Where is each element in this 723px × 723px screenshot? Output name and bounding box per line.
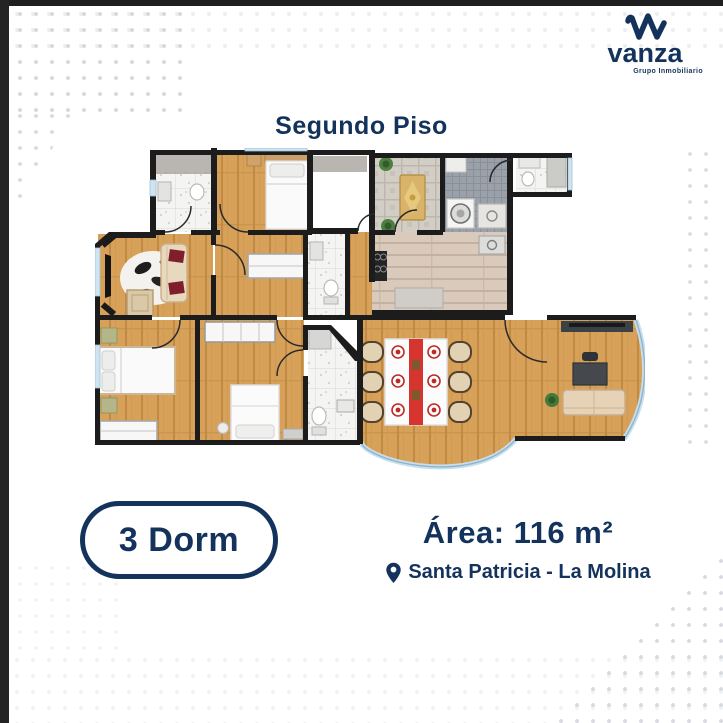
page-title: Segundo Piso <box>0 112 723 141</box>
dot-pattern-right <box>682 146 718 456</box>
closet-shelf <box>313 156 367 172</box>
bedrooms-badge-label: 3 Dorm <box>119 521 239 560</box>
property-info: Área: 116 m² Santa Patricia - La Molina <box>368 515 668 584</box>
brand-name: vanza <box>585 40 705 67</box>
hallway-closet <box>248 254 304 278</box>
frame-edge-left <box>0 0 9 723</box>
brand-logo: vanza Grupo Inmobiliario <box>585 12 705 75</box>
dot-pattern-top-left <box>12 6 182 114</box>
location-row: Santa Patricia - La Molina <box>368 561 668 584</box>
location-text: Santa Patricia - La Molina <box>408 561 650 584</box>
frame-edge-top <box>0 0 723 6</box>
area-text: Área: 116 m² <box>368 515 668 551</box>
dot-pattern-bottom <box>9 652 723 723</box>
flyer-canvas: vanza Grupo Inmobiliario Segundo Piso <box>0 0 723 723</box>
brand-tagline: Grupo Inmobiliario <box>585 68 705 75</box>
dining-set <box>361 339 471 425</box>
bedrooms-badge: 3 Dorm <box>80 501 278 579</box>
floor-plan <box>95 148 645 483</box>
location-pin-icon <box>385 562 402 584</box>
